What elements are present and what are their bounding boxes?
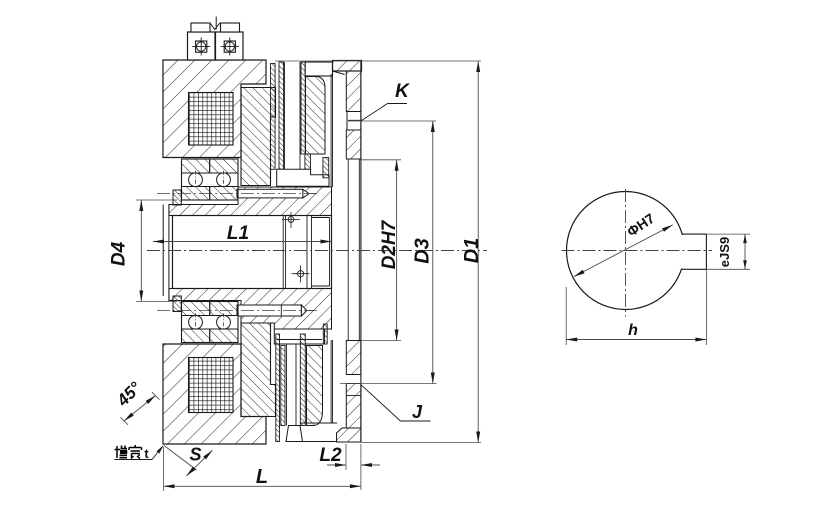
svg-text:L1: L1 [227,223,249,244]
svg-text:t: t [144,446,149,461]
svg-text:L2: L2 [319,445,342,466]
svg-text:D2H7: D2H7 [379,219,400,269]
svg-text:D1: D1 [461,238,483,264]
svg-text:eJS9: eJS9 [717,237,732,267]
svg-text:S: S [189,445,201,465]
svg-text:D3: D3 [412,238,434,264]
svg-text:J: J [412,402,423,422]
svg-text:L: L [256,466,268,488]
svg-text:45°: 45° [113,378,145,410]
svg-text:K: K [395,81,410,102]
svg-text:h: h [628,322,638,339]
svg-text:D4: D4 [109,241,130,266]
